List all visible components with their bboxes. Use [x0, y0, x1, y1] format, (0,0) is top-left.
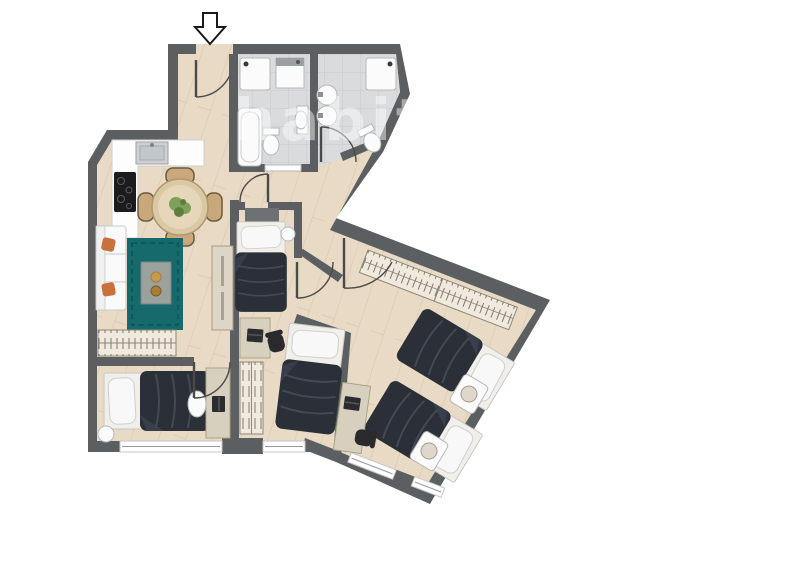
bedroom-2-window — [263, 441, 305, 452]
cooktop — [114, 172, 136, 212]
kitchen-sink — [136, 142, 168, 164]
laptop — [212, 396, 225, 412]
shower-head-icon — [388, 62, 393, 67]
sliding-door — [265, 165, 301, 171]
shower-head-icon — [244, 62, 249, 67]
floor-plan-page: habitaclia — [0, 0, 800, 565]
round-bedside — [98, 426, 114, 442]
entrance-opening — [196, 44, 233, 60]
decor-bowl-2 — [151, 286, 161, 296]
floor-plan: habitaclia — [0, 0, 800, 565]
bed-single — [235, 222, 287, 312]
desk-chair — [188, 391, 206, 417]
bedroom-4-window — [120, 441, 222, 452]
decor-bowl-1 — [151, 272, 161, 282]
round-side-table — [281, 227, 295, 241]
laptop — [343, 396, 361, 411]
wardrobe — [240, 362, 263, 434]
watermark: habitaclia — [234, 86, 606, 154]
washing-machine — [276, 58, 304, 88]
sofa — [96, 226, 126, 310]
coffee-table — [141, 262, 171, 304]
tall-cabinet — [212, 246, 233, 330]
cushion-orange-2 — [101, 282, 116, 297]
sideboard — [98, 330, 176, 356]
entrance-arrow-icon — [195, 13, 225, 44]
cushion-orange-1 — [101, 237, 116, 252]
laptop — [247, 328, 264, 342]
